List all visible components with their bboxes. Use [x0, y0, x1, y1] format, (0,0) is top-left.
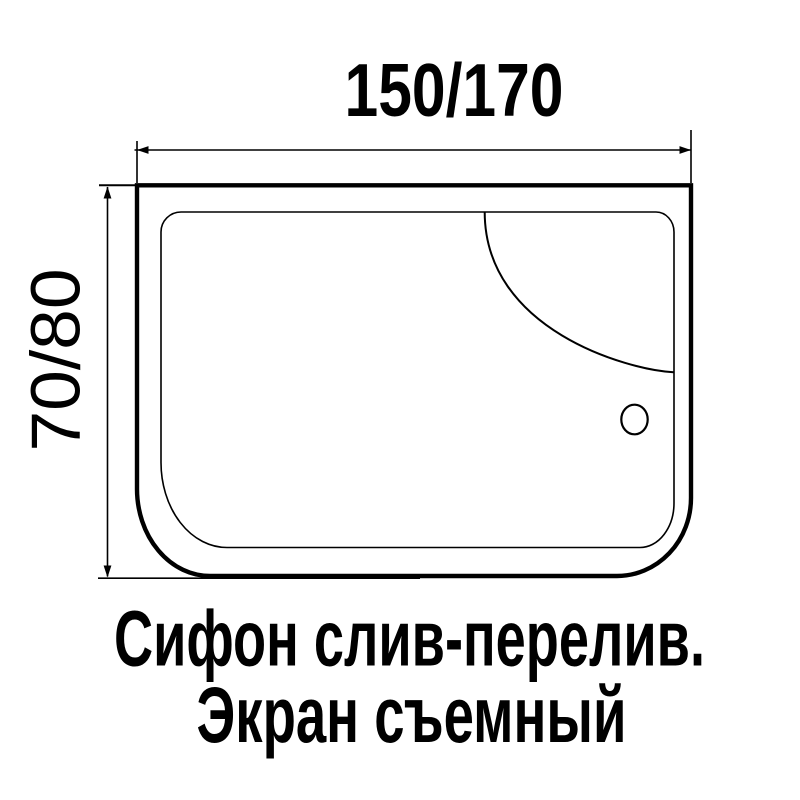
- svg-text:Экран съемный: Экран съемный: [197, 670, 627, 759]
- svg-text:150/170: 150/170: [345, 48, 564, 132]
- svg-text:70/80: 70/80: [17, 269, 95, 452]
